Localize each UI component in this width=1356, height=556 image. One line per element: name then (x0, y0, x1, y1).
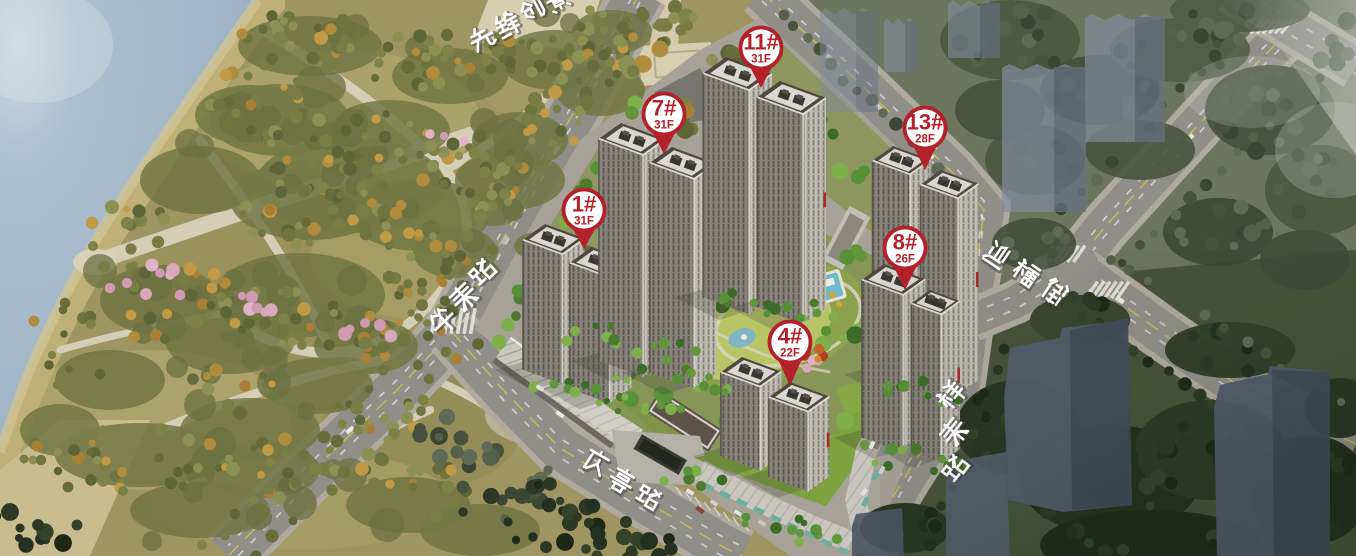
svg-text:31F: 31F (574, 216, 594, 228)
svg-text:28F: 28F (915, 134, 935, 146)
svg-text:4#: 4# (778, 324, 802, 349)
svg-text:31F: 31F (654, 120, 674, 132)
svg-text:22F: 22F (780, 348, 800, 360)
svg-text:11#: 11# (743, 30, 779, 55)
svg-text:7#: 7# (652, 96, 676, 121)
svg-text:1#: 1# (572, 192, 596, 217)
svg-text:13#: 13# (907, 110, 944, 135)
svg-text:31F: 31F (751, 54, 771, 66)
